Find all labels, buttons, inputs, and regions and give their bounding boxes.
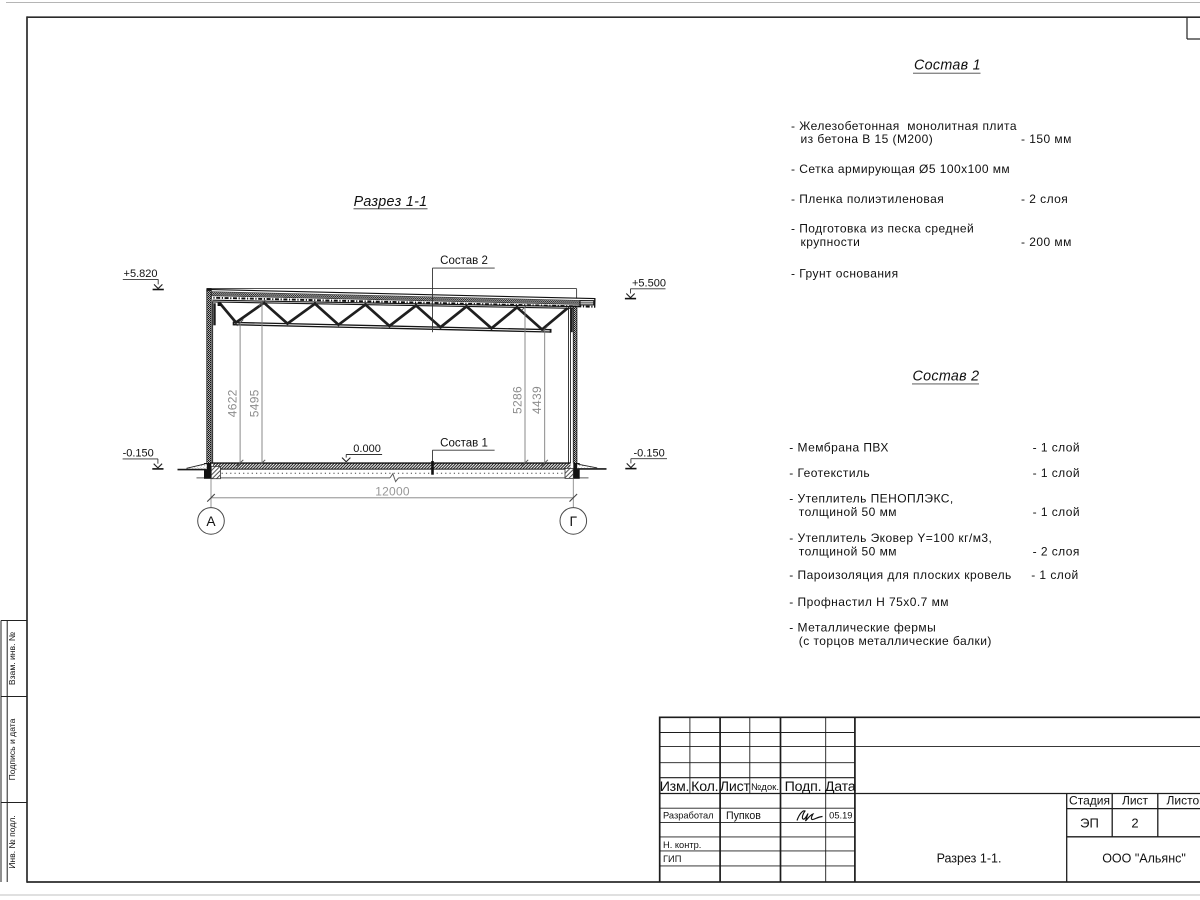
svg-text:- Профнастил Н 75х0.7 мм: - Профнастил Н 75х0.7 мм bbox=[789, 595, 949, 609]
svg-text:+5.500: +5.500 bbox=[632, 277, 666, 289]
svg-text:-0.150: -0.150 bbox=[123, 448, 154, 460]
svg-text:толщиной 50 мм: толщиной 50 мм bbox=[799, 505, 897, 519]
svg-text:-0.150: -0.150 bbox=[634, 447, 665, 459]
svg-text:Лист: Лист bbox=[720, 779, 751, 795]
svg-text:- 1 слой: - 1 слой bbox=[1031, 568, 1078, 582]
svg-text:2: 2 bbox=[1131, 815, 1138, 830]
svg-text:4622: 4622 bbox=[225, 389, 239, 417]
svg-text:Состав 1: Состав 1 bbox=[914, 58, 981, 74]
svg-text:- Грунт основания: - Грунт основания bbox=[791, 267, 899, 281]
svg-text:+5.820: +5.820 bbox=[124, 268, 158, 280]
svg-text:- 1 слой: - 1 слой bbox=[1033, 441, 1080, 455]
svg-text:Кол.: Кол. bbox=[691, 779, 718, 795]
svg-text:- Утеплитель Эковер Y=100 кг/м: - Утеплитель Эковер Y=100 кг/м3, bbox=[789, 531, 992, 545]
svg-text:толщиной 50 мм: толщиной 50 мм bbox=[799, 545, 897, 559]
svg-text:4439: 4439 bbox=[530, 386, 544, 414]
svg-text:крупности: крупности bbox=[801, 235, 861, 249]
svg-text:Подп.: Подп. bbox=[785, 779, 822, 795]
svg-text:- Пароизоляция для плоских кро: - Пароизоляция для плоских кровель bbox=[789, 568, 1011, 582]
svg-text:- 200 мм: - 200 мм bbox=[1021, 235, 1072, 249]
svg-text:- Геотекстиль: - Геотекстиль bbox=[789, 466, 870, 480]
svg-text:- 2 слоя: - 2 слоя bbox=[1021, 192, 1068, 206]
svg-text:из бетона В 15 (М200): из бетона В 15 (М200) bbox=[801, 132, 934, 146]
svg-text:- Утеплитель ПЕНОПЛЭКС,: - Утеплитель ПЕНОПЛЭКС, bbox=[789, 492, 953, 506]
svg-text:- Мембрана ПВХ: - Мембрана ПВХ bbox=[789, 441, 889, 455]
svg-text:Листов: Листов bbox=[1167, 793, 1200, 807]
svg-text:- Металлические фермы: - Металлические фермы bbox=[789, 621, 936, 635]
svg-text:Состав 1: Состав 1 bbox=[440, 438, 488, 450]
svg-text:- Подготовка из песка средней: - Подготовка из песка средней bbox=[791, 222, 974, 236]
svg-text:Разработал: Разработал bbox=[663, 811, 714, 821]
svg-text:Взам. инв. №: Взам. инв. № bbox=[7, 632, 17, 685]
svg-text:ЭП: ЭП bbox=[1080, 815, 1099, 830]
svg-text:Изм.: Изм. bbox=[660, 779, 690, 795]
svg-text:ГИП: ГИП bbox=[663, 854, 681, 864]
svg-text:- 1 слой: - 1 слой bbox=[1033, 505, 1080, 519]
svg-text:- 2 слоя: - 2 слоя bbox=[1033, 545, 1080, 559]
svg-text:- Железобетонная монолитная п: - Железобетонная монолитная плита bbox=[791, 119, 1017, 133]
svg-text:Подпись и дата: Подпись и дата bbox=[7, 718, 17, 780]
svg-text:ООО "Альянс": ООО "Альянс" bbox=[1102, 851, 1186, 865]
svg-text:Пупков: Пупков bbox=[726, 810, 761, 822]
svg-text:Лист: Лист bbox=[1122, 793, 1149, 807]
svg-text:(с торцов металлические балки): (с торцов металлические балки) bbox=[799, 634, 992, 648]
svg-text:Г: Г bbox=[570, 514, 578, 529]
svg-text:Н. контр.: Н. контр. bbox=[663, 840, 701, 850]
svg-text:Разрез 1-1.: Разрез 1-1. bbox=[937, 851, 1002, 865]
svg-text:- 1 слой: - 1 слой bbox=[1033, 466, 1080, 480]
svg-text:Стадия: Стадия bbox=[1069, 793, 1110, 807]
svg-text:Разрез 1-1: Разрез 1-1 bbox=[354, 194, 428, 210]
svg-text:12000: 12000 bbox=[375, 485, 410, 499]
svg-text:0.000: 0.000 bbox=[353, 443, 381, 455]
svg-text:Дата: Дата bbox=[825, 779, 856, 795]
svg-text:№док.: №док. bbox=[751, 782, 779, 793]
svg-text:5286: 5286 bbox=[511, 386, 525, 414]
svg-text:Состав 2: Состав 2 bbox=[913, 368, 980, 384]
svg-text:- Пленка полиэтиленовая: - Пленка полиэтиленовая bbox=[791, 192, 944, 206]
svg-text:- Сетка армирующая Ø5 100х100: - Сетка армирующая Ø5 100х100 мм bbox=[791, 162, 1010, 176]
svg-text:А: А bbox=[206, 514, 216, 529]
svg-text:Инв. № подл.: Инв. № подл. bbox=[7, 815, 17, 869]
svg-text:- 150 мм: - 150 мм bbox=[1021, 132, 1072, 146]
svg-text:5495: 5495 bbox=[248, 389, 262, 417]
svg-text:05.19: 05.19 bbox=[829, 811, 852, 821]
svg-text:Состав 2: Состав 2 bbox=[440, 255, 488, 267]
